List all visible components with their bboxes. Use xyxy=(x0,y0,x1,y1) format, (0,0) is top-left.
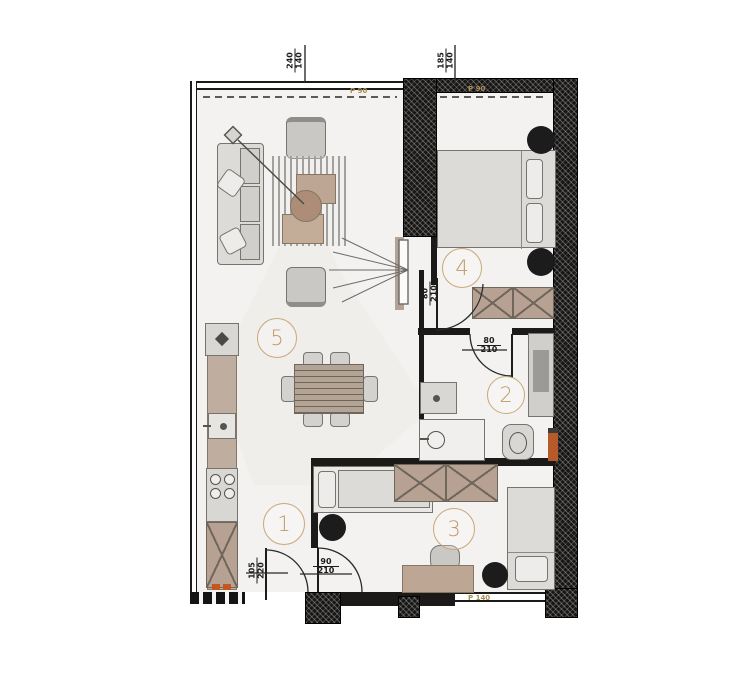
sliding-door-fan-line xyxy=(342,238,408,270)
window-callout-right-label: 185 140 xyxy=(438,49,455,73)
room-number: 3 xyxy=(447,517,460,541)
door-room4-label: 80 210 xyxy=(422,282,439,306)
room-circle-5: 5 xyxy=(257,318,297,358)
door-bathroom-label: 80 210 xyxy=(477,337,501,354)
parapet-note-top-right: P 90 xyxy=(468,86,485,93)
room-number: 4 xyxy=(455,256,468,280)
room-number: 1 xyxy=(277,512,290,536)
door-room3-label: 90 210 xyxy=(313,558,339,575)
door-entrance-arc xyxy=(266,550,308,592)
door-entrance-label: 105 220 xyxy=(249,558,266,584)
floor-plan-canvas: 1 2 3 4 5 240 140 185 140 80 210 80 210 … xyxy=(0,0,743,690)
room-circle-3: 3 xyxy=(433,508,475,550)
room-circle-4: 4 xyxy=(442,248,482,288)
room-number: 2 xyxy=(499,383,512,407)
parapet-note-bottom: P 140 xyxy=(468,595,490,602)
sliding-door-fan-line xyxy=(342,270,408,302)
door-room4-arc xyxy=(437,284,483,330)
light-cable-line xyxy=(238,140,304,204)
window-callout-left-label: 240 140 xyxy=(287,49,304,73)
sliding-door-fan-line xyxy=(333,252,408,270)
room-number: 5 xyxy=(270,326,283,350)
parapet-note-top-left: P 90 xyxy=(350,88,367,95)
sliding-door-fan-line xyxy=(333,270,408,288)
plan-linework xyxy=(0,0,743,690)
room-circle-2: 2 xyxy=(487,376,525,414)
room-circle-1: 1 xyxy=(263,503,305,545)
